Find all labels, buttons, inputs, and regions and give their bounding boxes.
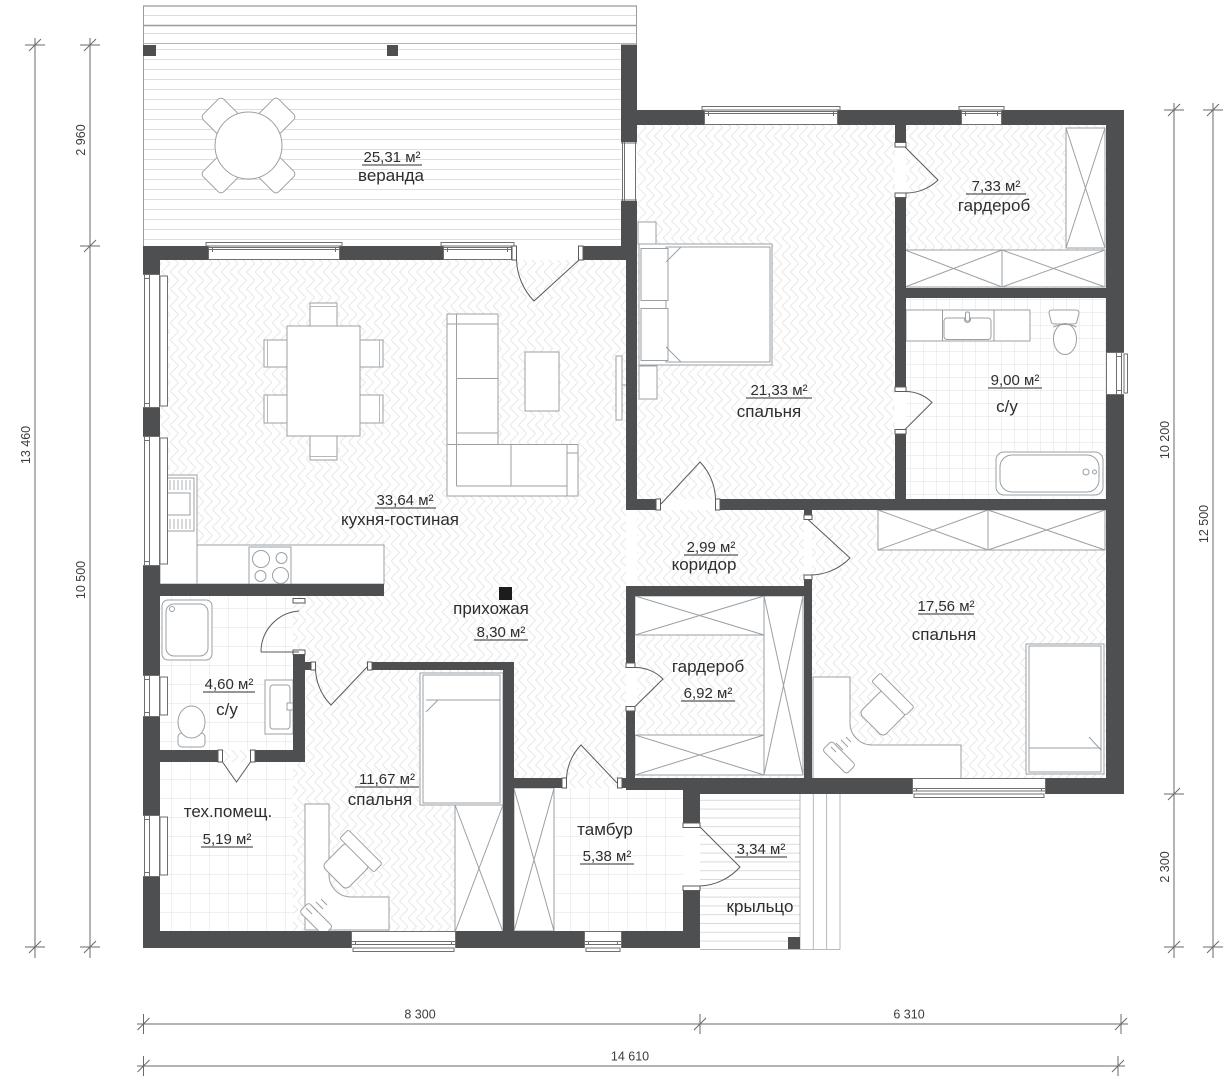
svg-text:тамбур: тамбур xyxy=(577,820,633,839)
svg-text:8,30 м²: 8,30 м² xyxy=(477,624,526,641)
svg-text:17,56 м²: 17,56 м² xyxy=(917,598,974,615)
svg-text:коридор: коридор xyxy=(672,555,737,574)
svg-text:2 300: 2 300 xyxy=(1158,851,1172,882)
svg-text:гардероб: гардероб xyxy=(958,196,1031,215)
svg-text:3,34 м²: 3,34 м² xyxy=(737,841,786,858)
svg-text:с/у: с/у xyxy=(216,700,238,719)
svg-text:спальня: спальня xyxy=(737,402,802,421)
svg-text:2 960: 2 960 xyxy=(74,124,88,155)
svg-text:тех.помещ.: тех.помещ. xyxy=(184,802,272,821)
svg-text:2,99 м²: 2,99 м² xyxy=(687,539,736,556)
svg-text:прихожая: прихожая xyxy=(453,599,529,618)
svg-text:10 500: 10 500 xyxy=(74,561,88,599)
svg-text:5,38 м²: 5,38 м² xyxy=(583,848,632,865)
svg-text:13 460: 13 460 xyxy=(19,426,33,464)
svg-text:12 500: 12 500 xyxy=(1197,505,1211,543)
svg-text:14 610: 14 610 xyxy=(611,1050,649,1064)
svg-text:6,92 м²: 6,92 м² xyxy=(684,685,733,702)
svg-text:7,33 м²: 7,33 м² xyxy=(972,178,1021,195)
svg-text:33,64 м²: 33,64 м² xyxy=(376,492,433,509)
svg-text:25,31 м²: 25,31 м² xyxy=(363,149,420,166)
svg-text:6 310: 6 310 xyxy=(893,1008,924,1022)
svg-text:веранда: веранда xyxy=(358,166,425,185)
svg-text:10 200: 10 200 xyxy=(1158,421,1172,459)
svg-text:9,00 м²: 9,00 м² xyxy=(991,372,1040,389)
svg-text:8 300: 8 300 xyxy=(404,1008,435,1022)
svg-text:спальня: спальня xyxy=(912,625,977,644)
svg-text:21,33 м²: 21,33 м² xyxy=(750,382,807,399)
svg-text:4,60 м²: 4,60 м² xyxy=(205,676,254,693)
svg-text:11,67 м²: 11,67 м² xyxy=(359,771,415,788)
svg-text:крыльцо: крыльцо xyxy=(727,897,794,916)
svg-text:5,19 м²: 5,19 м² xyxy=(203,831,252,848)
svg-text:гардероб: гардероб xyxy=(672,657,745,676)
svg-text:с/у: с/у xyxy=(996,397,1018,416)
svg-text:кухня-гостиная: кухня-гостиная xyxy=(341,510,459,529)
svg-text:спальня: спальня xyxy=(348,790,413,809)
